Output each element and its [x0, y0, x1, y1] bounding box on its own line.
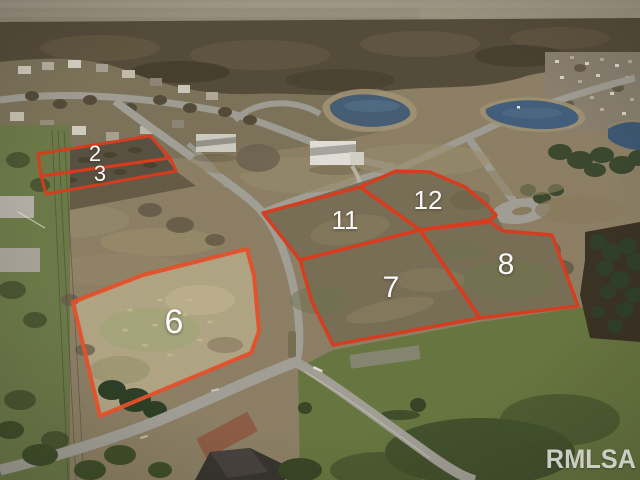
lot-8-label: 8	[498, 248, 515, 281]
watermark-logo: RMLSA	[546, 444, 636, 475]
scenery	[0, 0, 640, 480]
lot-6-label: 6	[165, 303, 184, 341]
lot-3-label: 3	[94, 161, 106, 186]
aerial-photo: 231112786 RMLSA	[0, 0, 640, 480]
scene-svg: 231112786	[0, 0, 640, 480]
lot-7-label: 7	[383, 271, 400, 304]
lot-12-label: 12	[414, 185, 443, 215]
lot-11-label: 11	[332, 205, 359, 235]
